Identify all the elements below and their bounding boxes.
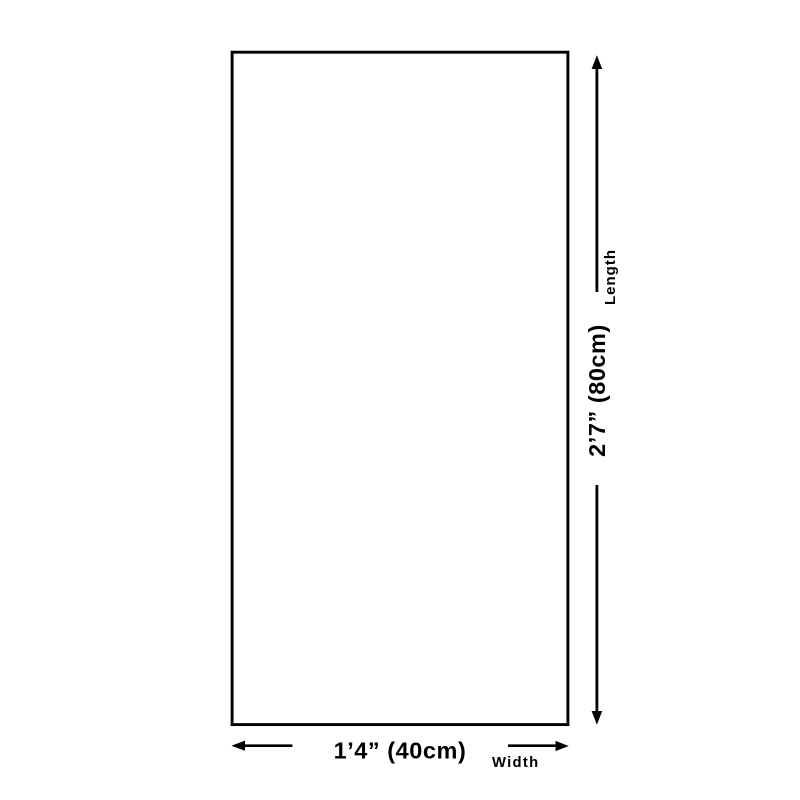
svg-text:1’4” (40cm): 1’4” (40cm) (334, 738, 467, 764)
svg-text:Length: Length (602, 249, 619, 305)
svg-text:Width: Width (492, 755, 539, 771)
svg-text:2’7” (80cm): 2’7” (80cm) (584, 324, 610, 457)
